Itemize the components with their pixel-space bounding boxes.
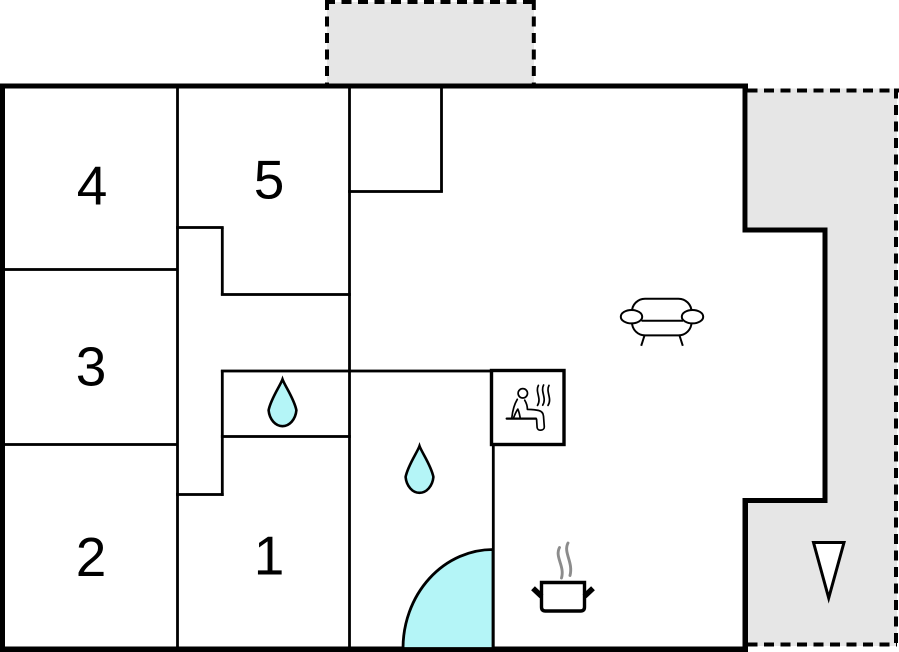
svg-text:4: 4: [77, 155, 108, 217]
svg-text:3: 3: [76, 336, 107, 398]
svg-text:1: 1: [254, 525, 285, 587]
svg-text:2: 2: [76, 526, 107, 588]
svg-text:5: 5: [254, 149, 285, 211]
